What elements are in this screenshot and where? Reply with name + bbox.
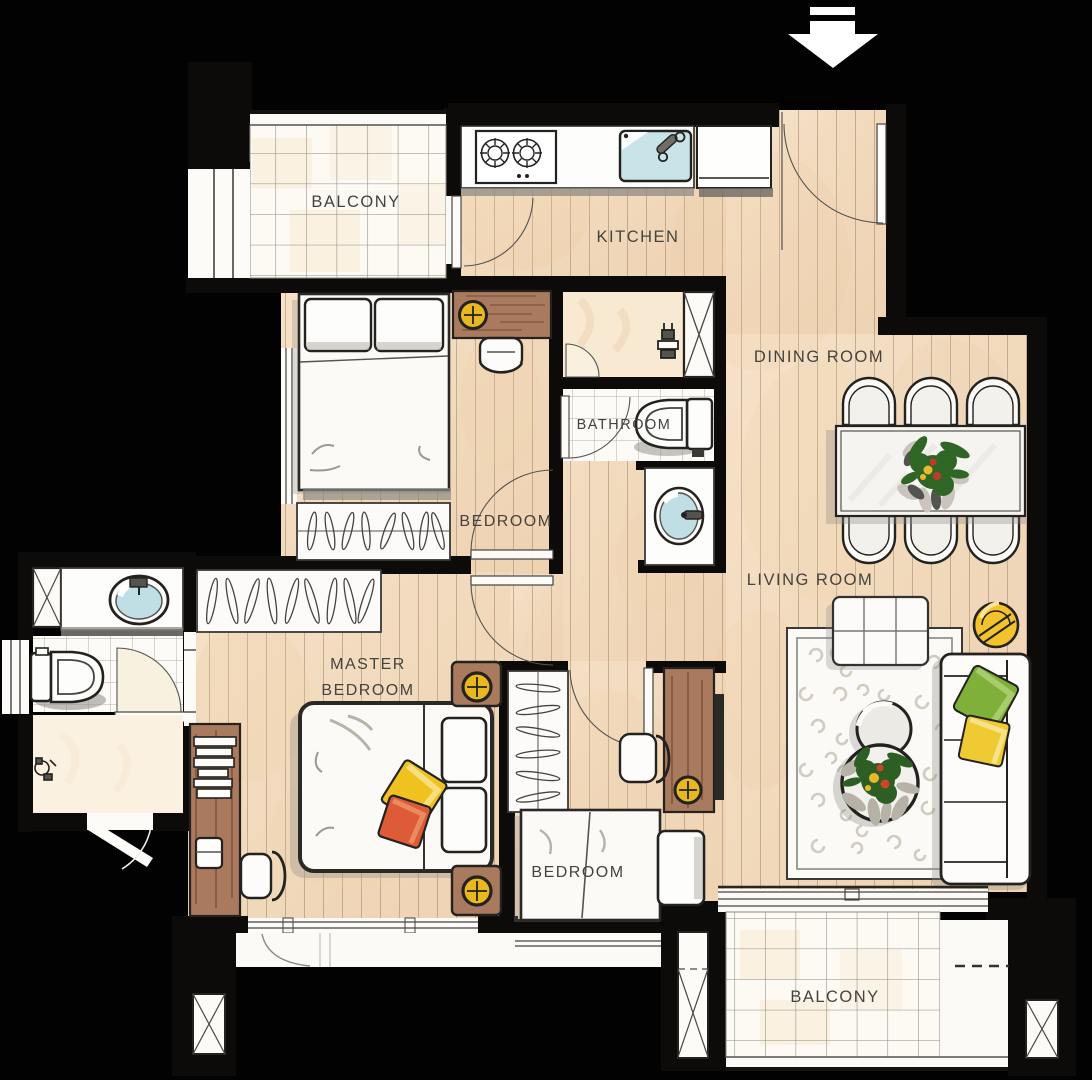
- svg-text:BEDROOM: BEDROOM: [531, 864, 624, 881]
- svg-text:LIVING ROOM: LIVING ROOM: [747, 571, 874, 589]
- svg-text:BEDROOM: BEDROOM: [321, 682, 414, 699]
- svg-text:BALCONY: BALCONY: [790, 988, 879, 1006]
- svg-text:BEDROOM: BEDROOM: [459, 513, 552, 530]
- svg-text:DINING ROOM: DINING ROOM: [754, 348, 884, 366]
- svg-text:MASTER: MASTER: [330, 656, 406, 673]
- svg-text:BATHROOM: BATHROOM: [577, 417, 672, 433]
- svg-text:BALCONY: BALCONY: [311, 193, 400, 211]
- svg-text:KITCHEN: KITCHEN: [597, 228, 680, 246]
